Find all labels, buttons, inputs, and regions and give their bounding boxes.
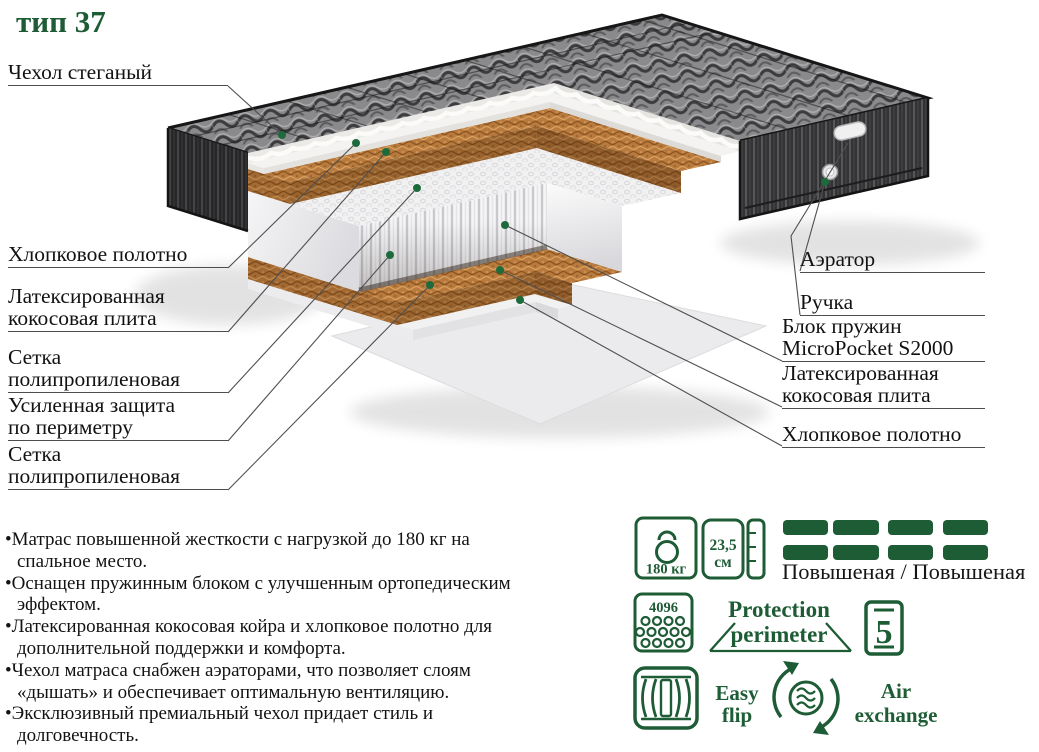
callout-label-cotton-left: Хлопковое полотно bbox=[8, 243, 228, 268]
feature-item: •Матрас повышенной жесткости с нагрузкой… bbox=[5, 529, 550, 573]
feature-item: •Латексированная кокосовая койра и хлопк… bbox=[5, 616, 550, 660]
height-icon: 23,5 см bbox=[703, 520, 764, 578]
air-exchange-line1: Air bbox=[881, 679, 911, 703]
callout-label-net-left-1: Сетка полипропиленовая bbox=[8, 346, 228, 393]
max-weight-icon: 180 кг bbox=[636, 518, 696, 578]
callout-label-coir-left: Латексированная кокосовая плита bbox=[8, 285, 228, 332]
protection-line1: Protection bbox=[728, 597, 830, 622]
callout-label-quilted-cover: Чехол стеганый bbox=[8, 61, 228, 86]
protection-line2: perimeter bbox=[730, 622, 827, 647]
easy-flip-line1: Easy bbox=[715, 681, 759, 705]
feature-item: •Оснащен пружинным блоком с улучшенным о… bbox=[5, 573, 550, 617]
feature-list: •Матрас повышенной жесткости с нагрузкой… bbox=[5, 529, 550, 747]
air-exchange-line2: exchange bbox=[855, 703, 938, 727]
callout-label-handle: Ручка bbox=[800, 291, 985, 316]
firmness-label: Повышеная / Повышеная bbox=[782, 559, 1025, 584]
height-value: 23,5 bbox=[709, 537, 736, 554]
feature-item: •Эксклюзивный премиальный чехол придает … bbox=[5, 703, 550, 747]
easy-flip-line2: flip bbox=[722, 703, 752, 727]
ruler-icon bbox=[748, 520, 764, 578]
callout-label-coir-right: Латексированная кокосовая плита bbox=[782, 362, 985, 409]
springs-count-icon: 4096 bbox=[635, 594, 692, 651]
infographic-page: 180 кг 23,5 см Повышеная / Повышеная bbox=[0, 0, 1039, 752]
callout-label-aerator: Аэратор bbox=[800, 248, 985, 273]
callout-label-perimeter-guard: Усиленная защита по периметру bbox=[8, 394, 228, 441]
callout-label-spring-block: Блок пружин MicroPocket S2000 bbox=[782, 315, 985, 362]
springs-count-value: 4096 bbox=[649, 600, 678, 616]
protection-perimeter-icon: Protection perimeter bbox=[710, 597, 851, 651]
callout-label-cotton-right: Хлопковое полотно bbox=[782, 423, 985, 448]
height-unit: см bbox=[714, 554, 732, 571]
max-weight-value: 180 кг bbox=[646, 562, 687, 578]
zones-value: 5 bbox=[876, 614, 893, 651]
page-title: тип 37 bbox=[16, 4, 106, 40]
zones-icon: 5 bbox=[866, 602, 902, 654]
air-exchange-icon bbox=[774, 661, 838, 735]
callout-label-net-left-2: Сетка полипропиленовая bbox=[8, 443, 228, 490]
firmness-indicator: Повышеная / Повышеная bbox=[782, 520, 1025, 584]
easy-flip-icon bbox=[635, 668, 697, 728]
feature-item: •Чехол матраса снабжен аэраторами, что п… bbox=[5, 660, 550, 704]
spec-icons: 180 кг 23,5 см Повышеная / Повышеная bbox=[635, 518, 1025, 735]
